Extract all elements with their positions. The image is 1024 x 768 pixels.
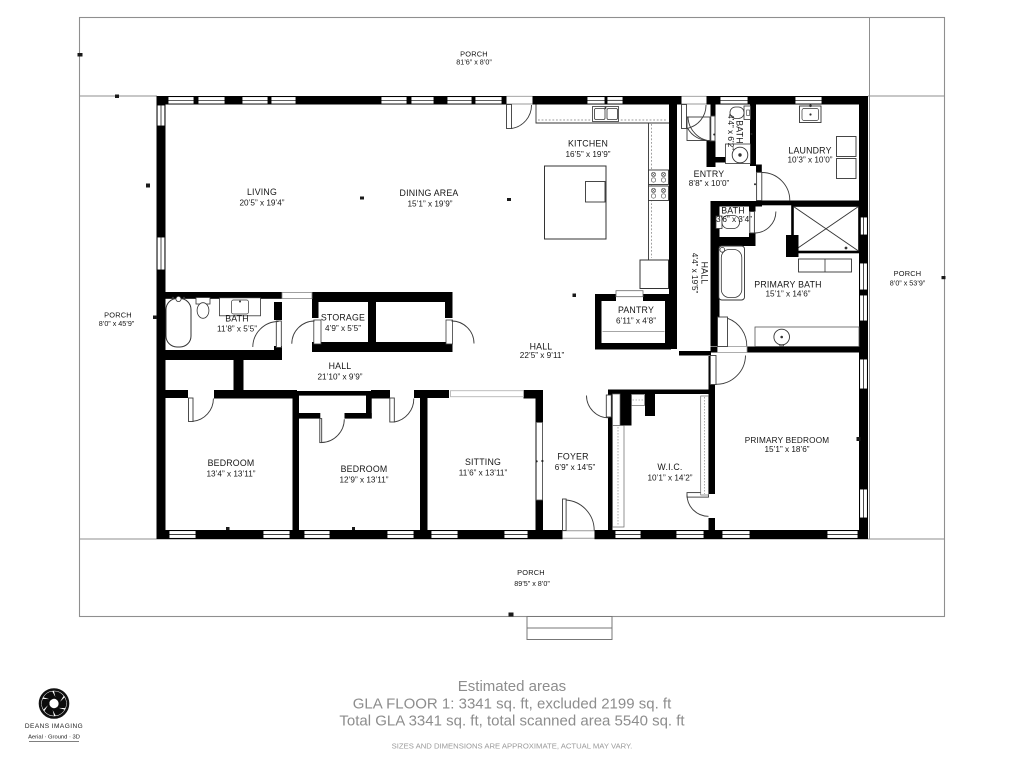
svg-text:8’0” x 45’9”: 8’0” x 45’9”	[99, 319, 135, 328]
svg-text:HALL: HALL	[530, 342, 553, 352]
svg-text:BEDROOM: BEDROOM	[341, 464, 388, 474]
svg-text:Total GLA 3341 sq. ft, total s: Total GLA 3341 sq. ft, total scanned are…	[339, 713, 685, 730]
svg-text:GLA FLOOR 1: 3341 sq. ft, excl: GLA FLOOR 1: 3341 sq. ft, excluded 2199 …	[353, 696, 672, 713]
svg-text:21’10” x 9’9”: 21’10” x 9’9”	[317, 373, 362, 382]
svg-text:4’4” x 19’5”: 4’4” x 19’5”	[690, 253, 699, 294]
svg-text:SIZES AND DIMENSIONS ARE APPRO: SIZES AND DIMENSIONS ARE APPROXIMATE, AC…	[392, 742, 633, 751]
svg-text:16’5” x 19’9”: 16’5” x 19’9”	[565, 150, 610, 159]
svg-text:10’1” x 14’2”: 10’1” x 14’2”	[647, 474, 692, 483]
svg-text:BEDROOM: BEDROOM	[208, 458, 255, 468]
svg-text:BATH: BATH	[225, 314, 249, 324]
svg-text:10’3” x 10’0”: 10’3” x 10’0”	[787, 156, 832, 165]
svg-text:15’1” x 14’6”: 15’1” x 14’6”	[765, 290, 810, 299]
svg-text:11’8” x 5’5”: 11’8” x 5’5”	[217, 325, 257, 334]
svg-text:Estimated areas: Estimated areas	[458, 678, 566, 695]
svg-text:8’0” x 53’9”: 8’0” x 53’9”	[890, 279, 926, 288]
svg-text:PORCH: PORCH	[517, 568, 545, 577]
svg-text:ENTRY: ENTRY	[694, 169, 725, 179]
svg-text:FOYER: FOYER	[557, 452, 588, 462]
svg-text:SITTING: SITTING	[465, 457, 501, 467]
svg-text:3’6” x 3’4”: 3’6” x 3’4”	[716, 215, 752, 224]
svg-text:PORCH: PORCH	[894, 269, 922, 278]
svg-text:HALL: HALL	[700, 262, 710, 285]
svg-text:4’4” x 6’2”: 4’4” x 6’2”	[726, 114, 735, 150]
svg-text:PANTRY: PANTRY	[618, 305, 654, 315]
svg-text:6’9” x 14’5”: 6’9” x 14’5”	[555, 463, 596, 472]
svg-text:PRIMARY BATH: PRIMARY BATH	[754, 280, 821, 290]
svg-text:HALL: HALL	[329, 361, 352, 371]
svg-text:89’5” x 8’0”: 89’5” x 8’0”	[514, 579, 550, 588]
svg-text:15’1” x 19’9”: 15’1” x 19’9”	[407, 200, 452, 209]
svg-text:W.I.C.: W.I.C.	[657, 462, 682, 472]
svg-text:12’9” x 13’11”: 12’9” x 13’11”	[339, 476, 388, 485]
svg-text:STORAGE: STORAGE	[321, 313, 365, 323]
svg-text:LIVING: LIVING	[247, 187, 277, 197]
svg-text:11’6” x 13’11”: 11’6” x 13’11”	[459, 469, 508, 478]
svg-text:6’11” x 4’8”: 6’11” x 4’8”	[616, 317, 656, 326]
svg-text:Aerial · Ground · 3D: Aerial · Ground · 3D	[28, 735, 80, 741]
svg-text:13’4” x 13’11”: 13’4” x 13’11”	[206, 470, 255, 479]
svg-text:DEANS IMAGING: DEANS IMAGING	[25, 723, 83, 730]
svg-text:BATH: BATH	[721, 206, 745, 216]
svg-text:20’5” x 19’4”: 20’5” x 19’4”	[239, 199, 284, 208]
svg-text:15’1” x 18’6”: 15’1” x 18’6”	[764, 445, 809, 454]
svg-text:PRIMARY BEDROOM: PRIMARY BEDROOM	[745, 436, 830, 445]
svg-text:22’5” x 9’11”: 22’5” x 9’11”	[520, 351, 565, 360]
svg-text:DINING AREA: DINING AREA	[400, 188, 459, 198]
svg-text:LAUNDRY: LAUNDRY	[788, 146, 831, 156]
svg-text:81’6” x 8’0”: 81’6” x 8’0”	[456, 58, 492, 67]
svg-text:4’9” x 5’5”: 4’9” x 5’5”	[325, 324, 361, 333]
svg-text:BATH: BATH	[735, 120, 745, 144]
svg-text:8’8” x 10’0”: 8’8” x 10’0”	[689, 179, 730, 188]
svg-text:KITCHEN: KITCHEN	[568, 139, 608, 149]
